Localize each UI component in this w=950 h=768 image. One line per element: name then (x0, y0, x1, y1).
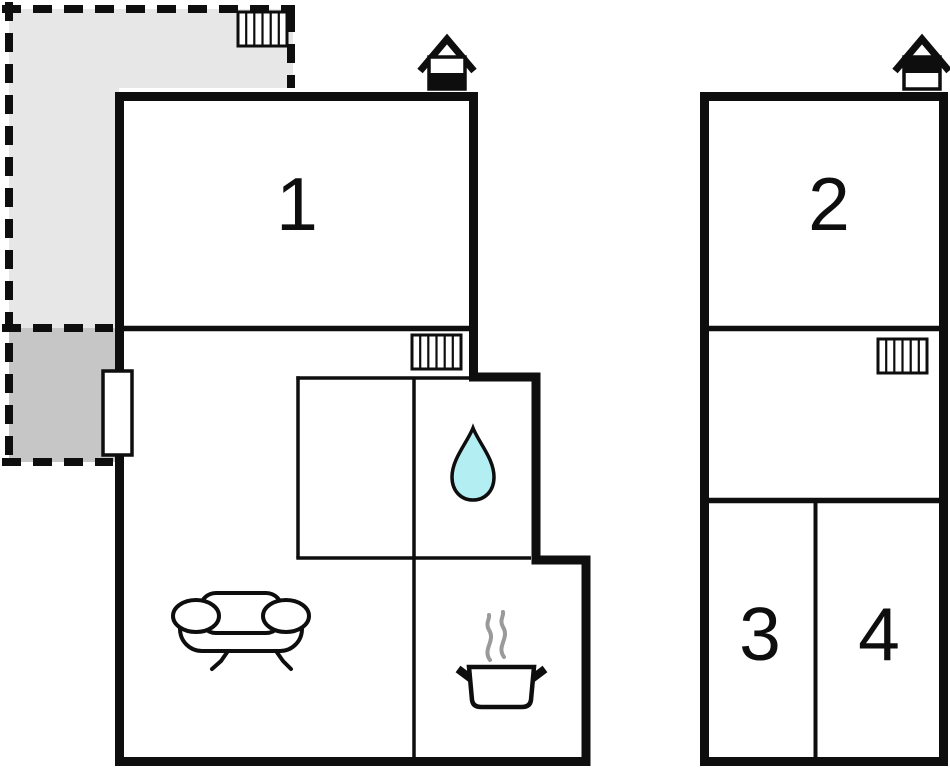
terrace-upper-surface (9, 9, 293, 328)
building-left: 1 (103, 39, 586, 762)
steam-line (501, 612, 505, 657)
radiator-icon-terrace (238, 12, 287, 46)
room-2-label: 2 (808, 162, 850, 246)
building-left-exterior-wall (120, 97, 587, 762)
floor-plan-drawing: 1 2 (0, 0, 950, 768)
sofa-icon (173, 593, 309, 669)
water-drop-icon (452, 428, 494, 500)
floor-plan-canvas: 1 2 (0, 0, 950, 768)
room-1-label: 1 (276, 162, 318, 246)
radiator-icon-living (412, 335, 461, 369)
steam-line (487, 615, 491, 660)
entrance-house-icon-left (420, 39, 474, 89)
entrance-house-icon-right (895, 39, 949, 89)
radiator-icon-right (878, 339, 927, 373)
steaming-pot-icon (458, 612, 545, 707)
pot-body (469, 667, 534, 707)
room-3-label: 3 (739, 592, 781, 676)
door-opening (103, 371, 132, 455)
building-right: 2 3 4 (705, 39, 950, 762)
room-4-label: 4 (858, 592, 900, 676)
terrace-area (2, 2, 295, 466)
